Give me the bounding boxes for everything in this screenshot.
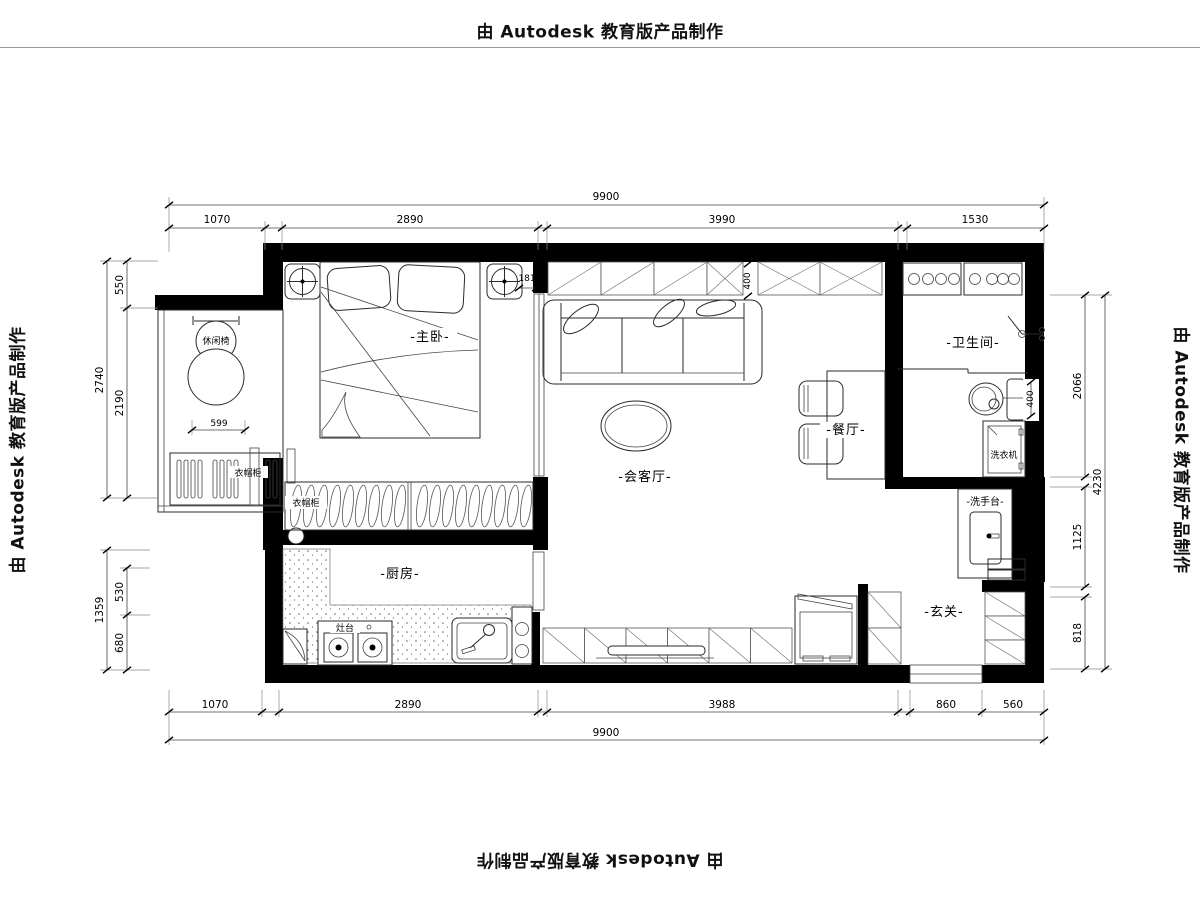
svg-text:400: 400: [1026, 390, 1036, 407]
svg-text:550: 550: [114, 275, 126, 295]
kitchen-sink: [452, 618, 512, 663]
master-bedroom-label: -主卧-: [410, 330, 449, 345]
svg-text:860: 860: [936, 699, 956, 711]
svg-text:680: 680: [114, 633, 126, 653]
svg-text:1530: 1530: [962, 214, 989, 226]
toilet: [969, 379, 1028, 420]
washstand-label: -洗手台-: [966, 495, 1004, 508]
tv: [608, 646, 705, 655]
leisure-chair-label: 休闲椅: [202, 335, 229, 347]
dining-set: -餐厅-: [799, 371, 885, 479]
svg-text:818: 818: [1072, 623, 1084, 643]
stove: 灶台: [318, 621, 392, 665]
dims-bottom: 1070 2890 3988 860 560 9900: [165, 690, 1048, 745]
fridge: [795, 594, 857, 664]
svg-text:2890: 2890: [397, 214, 424, 226]
bathroom-label: -卫生间-: [946, 336, 999, 351]
bed: -主卧-: [320, 262, 480, 438]
entry-cabinet-left: [868, 592, 901, 664]
svg-text:2190: 2190: [114, 390, 126, 417]
washstand: -洗手台-: [958, 489, 1012, 578]
sofa: [543, 295, 762, 384]
entry-label: -玄关-: [924, 605, 963, 620]
wardrobe-b-label: 衣帽柜: [292, 497, 319, 509]
svg-text:2740: 2740: [94, 367, 106, 394]
svg-text:1125: 1125: [1072, 524, 1084, 551]
svg-text:599: 599: [210, 419, 227, 429]
coffee-table: [601, 401, 671, 451]
svg-text:1359: 1359: [94, 597, 106, 624]
svg-text:9900: 9900: [593, 191, 620, 203]
bathroom-half-wall: [897, 369, 1028, 373]
kitchen-corner-unit: [283, 629, 307, 664]
kitchen-door-opening: [533, 552, 544, 610]
living-bottom-cabinets: [543, 628, 792, 663]
stove-label: 灶台: [336, 622, 354, 634]
dims-top: 9900 1070 2890 3990 1530: [165, 191, 1048, 252]
dim-toilet-400: 400: [1023, 379, 1039, 421]
svg-text:2890: 2890: [395, 699, 422, 711]
washing-machine-label: 洗衣机: [990, 449, 1017, 461]
dim-chair-599: 599: [188, 419, 249, 435]
dining-label: -餐厅-: [826, 422, 865, 438]
svg-text:1070: 1070: [204, 214, 231, 226]
svg-text:400: 400: [743, 272, 753, 289]
svg-text:530: 530: [114, 582, 126, 602]
svg-text:3990: 3990: [709, 214, 736, 226]
living-top-cabinets: [548, 262, 882, 295]
svg-text:560: 560: [1003, 699, 1023, 711]
cad-sheet: 由 Autodesk 教育版产品制作 由 Autodesk 教育版产品制作 由 …: [0, 0, 1200, 900]
dims-right: 2066 1125 818 4230: [1050, 292, 1112, 672]
svg-text:4230: 4230: [1092, 469, 1104, 496]
svg-text:2066: 2066: [1072, 372, 1084, 399]
kitchen-label: -厨房-: [380, 566, 419, 582]
wardrobe-hanging: 衣帽柜: [285, 482, 534, 530]
kitchen-side-cabinet: [512, 607, 532, 664]
wardrobe-a-label: 衣帽柜: [234, 467, 261, 479]
ceiling-light-right: [487, 264, 522, 299]
washing-machine: 洗衣机: [983, 421, 1025, 477]
ceiling-light-left: [285, 264, 320, 299]
entry-door-opening: [910, 665, 982, 683]
living-room-label: -会客厅-: [618, 469, 671, 485]
leisure-chair: 休闲椅: [188, 316, 244, 405]
bathroom-vanity: [903, 263, 1022, 295]
floorplan-drawing: 休闲椅 599 衣帽柜: [0, 0, 1200, 900]
svg-text:181: 181: [518, 274, 535, 284]
dim-cabinet-400: 400: [743, 261, 753, 299]
svg-text:9900: 9900: [593, 727, 620, 739]
svg-text:1070: 1070: [202, 699, 229, 711]
dims-left: 550 2190 2740 530 680 1359: [94, 258, 158, 673]
svg-text:3988: 3988: [709, 699, 736, 711]
